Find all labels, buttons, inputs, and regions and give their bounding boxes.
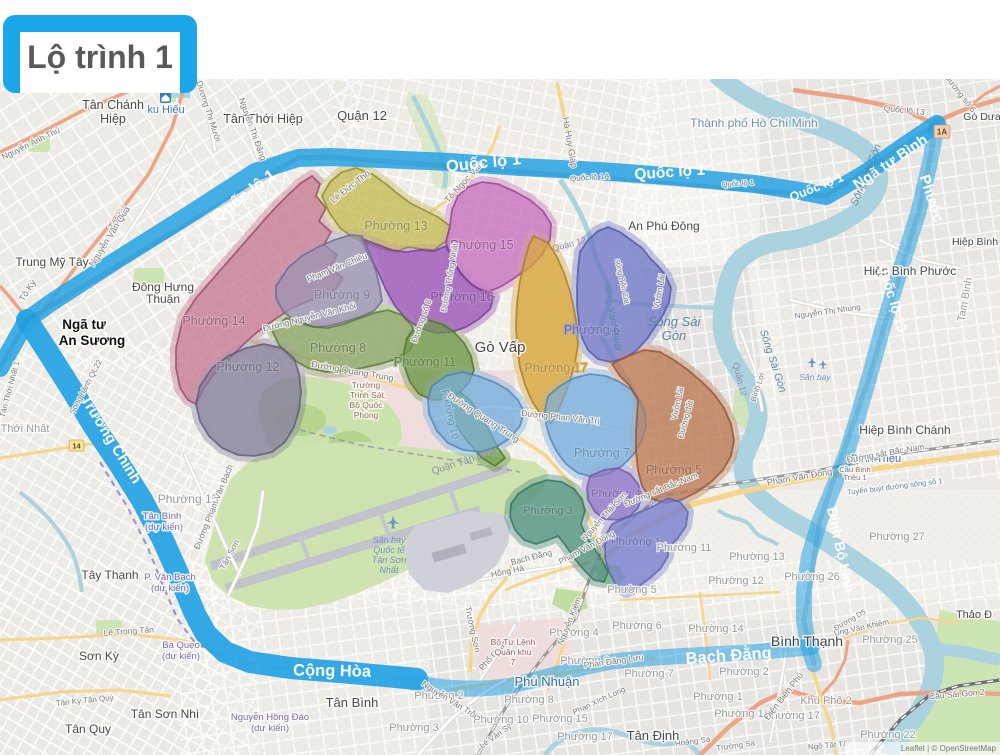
svg-text:ku Hiếu: ku Hiếu bbox=[147, 104, 184, 116]
svg-text:Triệu 1: Triệu 1 bbox=[843, 473, 866, 482]
svg-text:(dự kiến): (dự kiến) bbox=[151, 583, 189, 594]
svg-text:(dự kiến): (dự kiến) bbox=[145, 522, 183, 533]
svg-text:Phường 13: Phường 13 bbox=[729, 551, 785, 563]
svg-text:Sân bay: Sân bay bbox=[799, 372, 831, 382]
svg-text:Hiệp Bình: Hiệp Bình bbox=[952, 236, 998, 248]
svg-text:Tân Sơn Nhì: Tân Sơn Nhì bbox=[131, 707, 200, 721]
svg-text:Nguyễn Hồng Đào: Nguyễn Hồng Đào bbox=[231, 712, 309, 723]
svg-text:Phường 13: Phường 13 bbox=[364, 219, 427, 233]
svg-text:Phường 9: Phường 9 bbox=[314, 288, 370, 302]
svg-text:Tân Thới Hiệp: Tân Thới Hiệp bbox=[223, 112, 303, 126]
svg-text:Phường 3: Phường 3 bbox=[523, 505, 572, 517]
svg-text:Thuận: Thuận bbox=[146, 292, 180, 306]
svg-text:Quân khu: Quân khu bbox=[495, 647, 532, 657]
svg-text:1A: 1A bbox=[937, 128, 947, 137]
svg-text:Hiệp: Hiệp bbox=[100, 112, 126, 126]
svg-text:Phường 7: Phường 7 bbox=[624, 668, 673, 680]
svg-text:Phường 11: Phường 11 bbox=[394, 355, 456, 369]
svg-text:Tây Thạnh: Tây Thạnh bbox=[81, 568, 138, 582]
svg-text:Phường 14: Phường 14 bbox=[182, 314, 245, 328]
svg-text:Phường 17: Phường 17 bbox=[557, 731, 613, 743]
svg-text:Tân Sơn: Tân Sơn bbox=[372, 555, 406, 565]
svg-text:Phường 1: Phường 1 bbox=[611, 536, 660, 548]
svg-text:Trung Mỹ Tây: Trung Mỹ Tây bbox=[15, 255, 88, 269]
svg-text:Thới Nhất: Thới Nhất bbox=[1, 423, 50, 435]
svg-text:Phường 1: Phường 1 bbox=[693, 691, 742, 703]
svg-text:Phường 12: Phường 12 bbox=[708, 575, 764, 587]
svg-text:Bộ Tư Lệnh: Bộ Tư Lệnh bbox=[491, 637, 536, 647]
svg-text:Lộ trình 1: Lộ trình 1 bbox=[27, 39, 173, 75]
svg-text:Leaflet | © OpenStreetMap: Leaflet | © OpenStreetMap bbox=[901, 744, 997, 753]
svg-text:(dự kiến): (dự kiến) bbox=[251, 723, 289, 734]
svg-text:Sông Sài: Sông Sài bbox=[648, 314, 702, 329]
svg-text:Trường: Trường bbox=[352, 380, 381, 390]
svg-text:Sơn Kỳ: Sơn Kỳ bbox=[79, 649, 119, 663]
svg-text:Gòn: Gòn bbox=[662, 328, 687, 343]
svg-text:Gò Vấp: Gò Vấp bbox=[475, 339, 526, 356]
svg-text:Nhất: Nhất bbox=[379, 565, 399, 575]
svg-text:Phường 6: Phường 6 bbox=[612, 620, 661, 632]
svg-text:P. Văn Bạch: P. Văn Bạch bbox=[144, 572, 196, 583]
svg-text:Phường 3: Phường 3 bbox=[389, 722, 438, 734]
svg-text:Phú Nhuận: Phú Nhuận bbox=[514, 674, 579, 689]
svg-text:Phường 15: Phường 15 bbox=[532, 713, 588, 725]
svg-text:Tân Chánh: Tân Chánh bbox=[82, 98, 144, 112]
svg-text:Cộng Hòa: Cộng Hòa bbox=[293, 661, 372, 680]
svg-text:Quốc tế: Quốc tế bbox=[373, 545, 406, 555]
svg-text:Phường 15: Phường 15 bbox=[714, 708, 770, 720]
svg-text:Bộ Quốc: Bộ Quốc bbox=[349, 400, 383, 410]
svg-text:Phường 26: Phường 26 bbox=[784, 571, 840, 583]
svg-text:Phường 2: Phường 2 bbox=[719, 666, 768, 678]
svg-text:Phường 25: Phường 25 bbox=[862, 634, 918, 646]
svg-text:Quận 12: Quận 12 bbox=[337, 108, 387, 123]
svg-text:Phường 15: Phường 15 bbox=[450, 238, 513, 252]
svg-text:Tân Định: Tân Định bbox=[627, 728, 680, 743]
svg-text:14: 14 bbox=[72, 442, 81, 451]
svg-text:An Sương: An Sương bbox=[59, 333, 126, 348]
svg-text:Phường 8: Phường 8 bbox=[504, 694, 553, 706]
svg-text:Phường 17: Phường 17 bbox=[524, 361, 587, 375]
svg-text:7: 7 bbox=[511, 657, 516, 667]
svg-text:Tân Bình: Tân Bình bbox=[326, 695, 379, 710]
svg-text:An Phú Đông: An Phú Đông bbox=[628, 219, 699, 233]
svg-text:(dự kiến): (dự kiến) bbox=[162, 651, 200, 662]
svg-text:Phường 10: Phường 10 bbox=[473, 714, 529, 726]
svg-text:Tân Bình: Tân Bình bbox=[143, 511, 182, 522]
svg-text:Sân bay: Sân bay bbox=[372, 535, 406, 545]
svg-text:Phường 22: Phường 22 bbox=[860, 729, 916, 741]
svg-text:Ngã tư: Ngã tư bbox=[62, 317, 106, 332]
svg-text:Bà Quẹo: Bà Quẹo bbox=[162, 640, 200, 651]
svg-text:Gò Dưa: Gò Dưa bbox=[963, 111, 1000, 123]
svg-text:Phường 11: Phường 11 bbox=[657, 542, 712, 554]
svg-text:Phường 8: Phường 8 bbox=[310, 341, 366, 355]
svg-text:Bình Thạnh: Bình Thạnh bbox=[771, 633, 843, 649]
svg-text:Trinh Sát,: Trinh Sát, bbox=[350, 390, 387, 400]
svg-text:Phòng: Phòng bbox=[354, 410, 379, 420]
svg-text:Thành phố Hồ Chí Minh: Thành phố Hồ Chí Minh bbox=[690, 116, 817, 130]
svg-text:Tân Quy: Tân Quy bbox=[65, 722, 111, 736]
svg-text:Phường 14: Phường 14 bbox=[688, 623, 744, 635]
svg-text:Phường 7: Phường 7 bbox=[574, 446, 630, 460]
svg-text:Phường 27: Phường 27 bbox=[869, 531, 925, 543]
svg-text:Thảo Đ: Thảo Đ bbox=[956, 609, 992, 621]
svg-text:Khu Phố 2: Khu Phố 2 bbox=[800, 695, 851, 707]
svg-text:Phường 5: Phường 5 bbox=[607, 584, 656, 596]
svg-text:Hiệp Bình Chánh: Hiệp Bình Chánh bbox=[859, 423, 950, 437]
svg-text:Phường 12: Phường 12 bbox=[216, 360, 279, 374]
